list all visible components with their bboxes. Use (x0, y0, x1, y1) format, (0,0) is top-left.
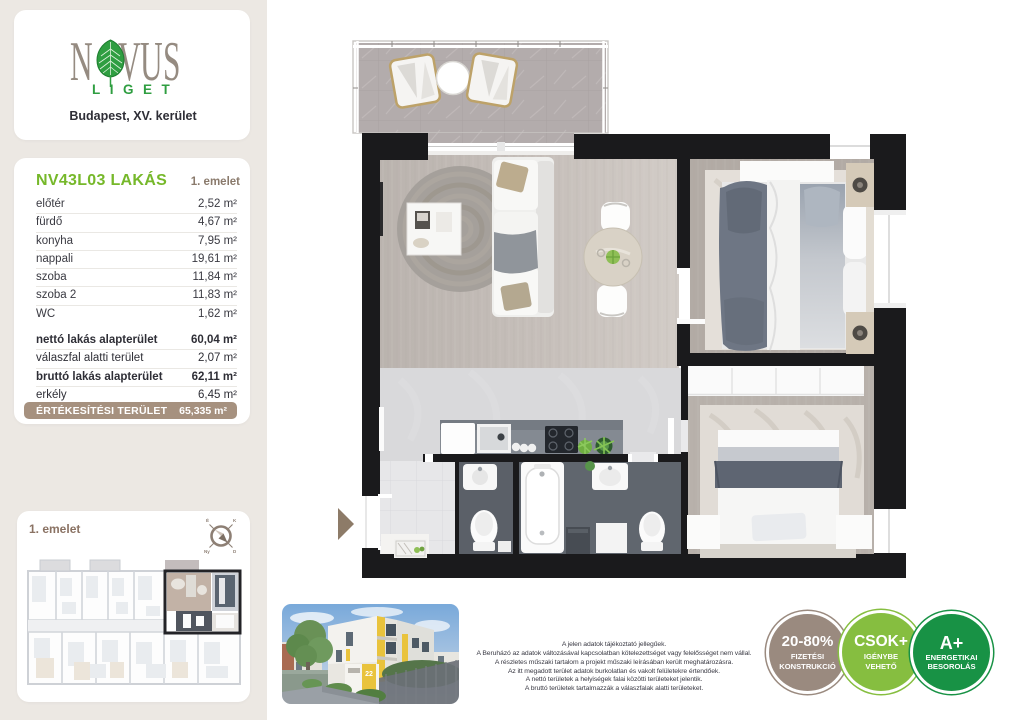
svg-text:22: 22 (365, 671, 373, 678)
